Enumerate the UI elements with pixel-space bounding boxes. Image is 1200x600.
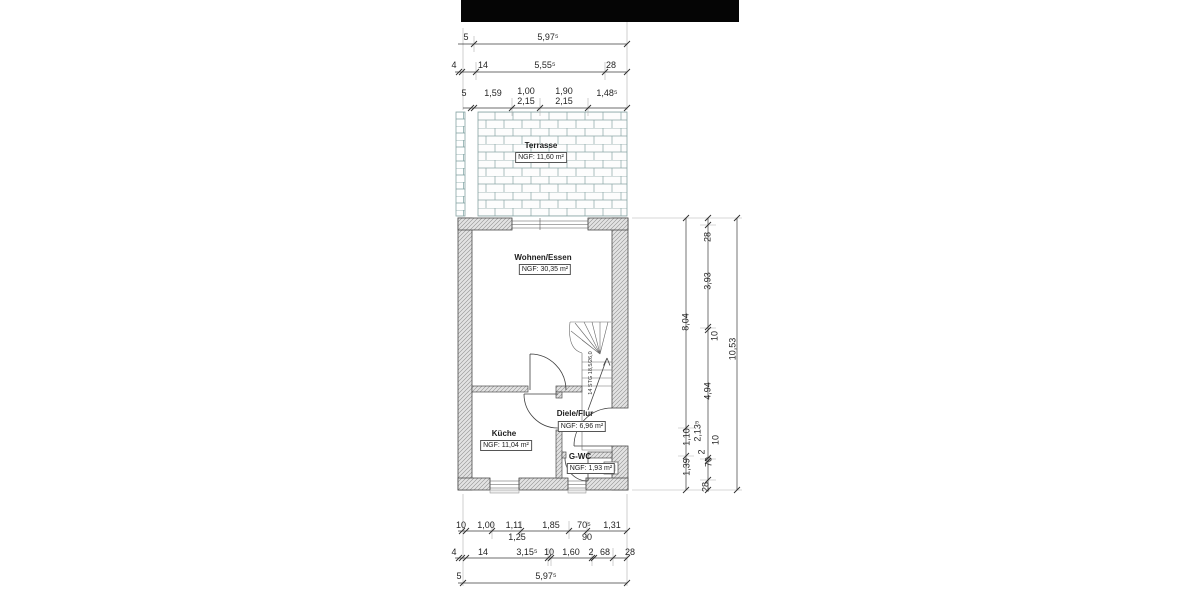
dim-bot1-c: 1,11 — [506, 521, 523, 530]
header-bar — [461, 0, 739, 22]
dim-top3-s2: 1,00 — [517, 87, 535, 96]
dim-bot3-pre: 5 — [456, 572, 461, 581]
dim-bot3-span: 5,97⁵ — [535, 572, 556, 581]
dim-right-mid-c: 10 — [711, 331, 720, 341]
dim-right-mid-a: 28 — [704, 232, 713, 242]
stair-annotation: 14 STG 18,5/26,0 — [588, 351, 594, 394]
dim-top3-s1: 1,59 — [484, 89, 502, 98]
dim-right-inner-a: 8,04 — [682, 313, 691, 331]
dim-right-inner-b-height: 2,13⁵ — [694, 420, 703, 441]
dim-top3-s4: 1,48⁵ — [596, 89, 617, 98]
room-label-diele-flur: Diele/Flur — [557, 409, 593, 418]
dim-top3-s2-height: 2,15 — [517, 97, 535, 106]
dim-bot1-e: 70⁵ — [577, 521, 591, 530]
dim-right-mid-e: 10 — [712, 435, 721, 445]
dim-top2-c: 28 — [606, 61, 616, 70]
dim-right-mid-b: 3,93 — [704, 272, 713, 290]
dim-bot1-e-height: 90 — [582, 533, 592, 542]
dim-bot2-d: 10 — [544, 548, 554, 557]
dim-top3-s3: 1,90 — [555, 87, 573, 96]
dim-bot1-f: 1,31 — [603, 521, 621, 530]
room-area-wohnen-essen: NGF: 30,35 m² — [519, 264, 571, 275]
dim-right-mid-g: 70 — [705, 457, 714, 467]
dim-right-mid-h: 28 — [702, 482, 711, 492]
room-area-kueche: NGF: 11,04 m² — [480, 440, 532, 451]
dim-top1-span: 5,97⁵ — [537, 33, 558, 42]
room-label-wohnen-essen: Wohnen/Essen — [514, 253, 571, 262]
dim-bot2-b: 14 — [478, 548, 488, 557]
dim-right-outer-total: 10,53 — [729, 338, 738, 361]
dim-bot1-b: 1,00 — [477, 521, 495, 530]
room-label-gwc: G-WC — [569, 452, 591, 461]
dim-top3-pre: 5 — [461, 89, 466, 98]
dim-top3-s3-height: 2,15 — [555, 97, 573, 106]
room-label-terrasse: Terrasse — [525, 141, 558, 150]
room-area-diele-flur: NGF: 6,96 m² — [558, 421, 606, 432]
dim-right-mid-f: 2 — [698, 449, 707, 454]
dim-bot2-f: 2 — [588, 548, 593, 557]
dim-bot2-a: 4 — [451, 548, 456, 557]
room-area-terrasse: NGF: 11,60 m² — [515, 152, 567, 163]
dim-top1-pre: 5 — [463, 33, 468, 42]
dim-top2-span: 5,55⁵ — [534, 61, 555, 70]
floorplan-sheet: Terrasse NGF: 11,60 m² Wohnen/Essen NGF:… — [0, 0, 1200, 600]
dim-bot1-c-height: 1,25 — [508, 533, 526, 542]
dim-bot2-h: 28 — [625, 548, 635, 557]
dim-bot1-d: 1,85 — [542, 521, 560, 530]
dim-top2-a: 4 — [451, 61, 456, 70]
dim-top2-b: 14 — [478, 61, 488, 70]
dim-bot2-g: 68 — [600, 548, 610, 557]
dim-bot2-e: 1,60 — [562, 548, 580, 557]
room-area-gwc: NGF: 1,93 m² — [567, 463, 615, 474]
room-label-kueche: Küche — [492, 429, 516, 438]
dim-bot2-c: 3,15⁵ — [516, 548, 537, 557]
dim-right-inner-b: 1,10 — [683, 428, 692, 446]
dim-bot1-a: 10 — [456, 521, 466, 530]
dim-right-inner-c: 1,39 — [683, 458, 692, 476]
dim-right-mid-d: 4,94 — [704, 382, 713, 400]
